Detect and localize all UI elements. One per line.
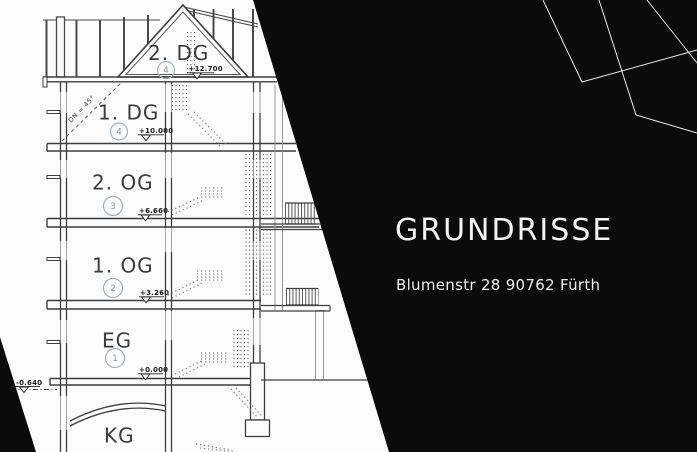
dark-corner-triangle [0, 337, 36, 452]
flyer-canvas: DN = 45° 2. DG 1. DG 2. OG 1. OG EG KG 4… [0, 0, 697, 452]
address-subtitle: Blumenstr 28 90762 Fürth [396, 276, 600, 294]
page-title: GRUNDRISSE [395, 214, 613, 247]
